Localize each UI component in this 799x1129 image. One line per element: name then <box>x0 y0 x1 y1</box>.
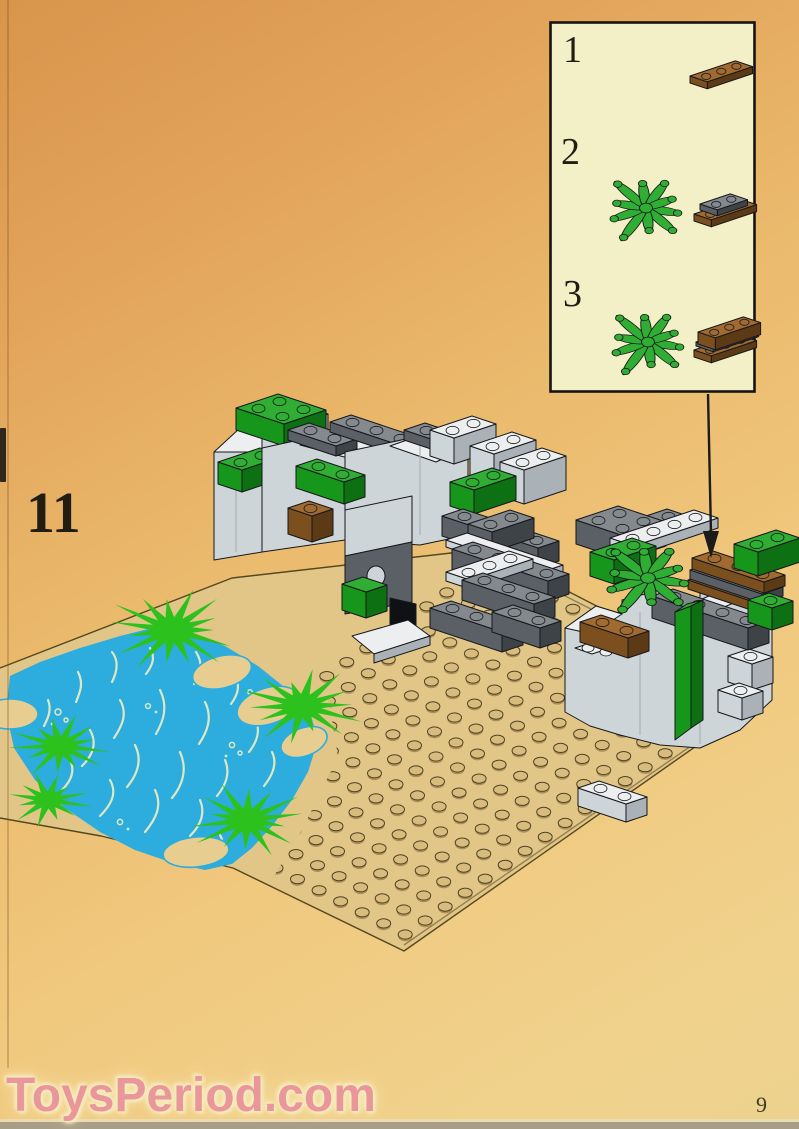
inset-step-3-label: 3 <box>563 273 582 315</box>
rock-step <box>728 649 773 690</box>
green-brick <box>748 593 793 630</box>
inset-box: 1 2 3 <box>551 23 761 392</box>
inset-step-2-label: 2 <box>561 131 580 173</box>
rock-step <box>718 683 763 720</box>
toysperiod-watermark: ToysPeriod.com <box>6 1068 446 1123</box>
right-rock-formation <box>565 506 799 748</box>
callout-arrow <box>703 394 719 558</box>
brown-brick <box>288 501 333 542</box>
instruction-page: 1 2 3 11 9 ToysPeriod.com <box>0 0 799 1129</box>
green-brick <box>342 577 387 618</box>
page-number: 9 <box>756 1092 767 1117</box>
green-column <box>675 600 703 740</box>
green-brick <box>734 530 799 576</box>
main-step-number: 11 <box>26 480 81 545</box>
inset-step-1-label: 1 <box>563 29 582 71</box>
instruction-illustration: 1 2 3 11 9 <box>0 0 799 1129</box>
